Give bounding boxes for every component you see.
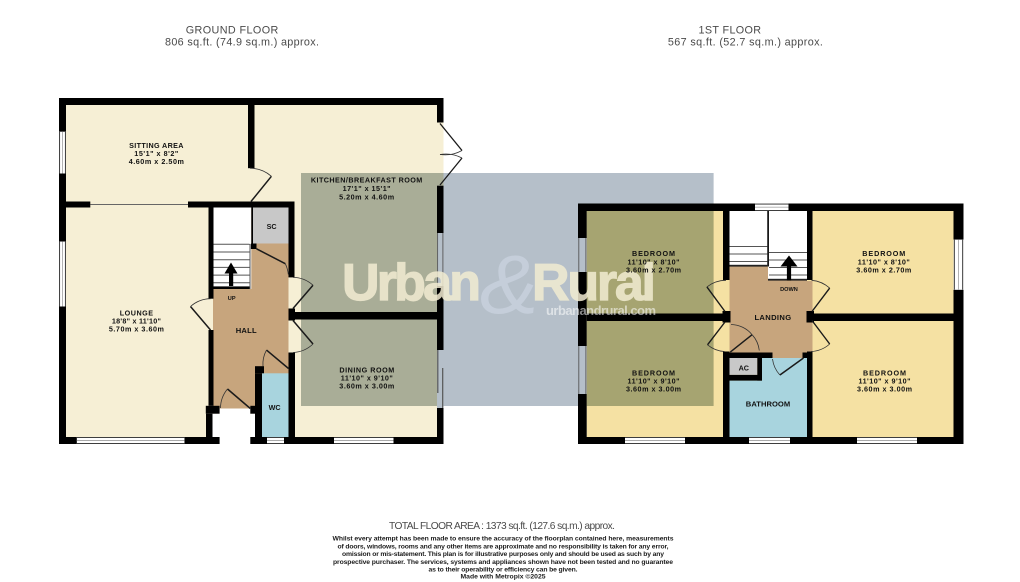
svg-text:as to their operability or eff: as to their operability or efficiency ca… [429,566,578,573]
svg-text:of doors, windows, rooms and a: of doors, windows, rooms and any other i… [338,543,669,550]
svg-text:urbanandrural.com: urbanandrural.com [546,303,656,318]
svg-text:3.60m x 2.70m: 3.60m x 2.70m [626,266,681,275]
svg-text:LANDING: LANDING [754,313,791,322]
svg-text:SC: SC [267,222,277,231]
svg-text:3.60m x 3.00m: 3.60m x 3.00m [626,385,681,394]
svg-text:Made with Metropix ©2025: Made with Metropix ©2025 [461,573,546,581]
svg-text:GROUND FLOOR: GROUND FLOOR [186,25,279,37]
svg-text:Urban: Urban [342,254,481,312]
svg-text:UP: UP [228,296,236,302]
svg-text:4.60m x 2.50m: 4.60m x 2.50m [129,157,184,166]
svg-text:AC: AC [739,364,749,373]
svg-text:5.20m x 4.60m: 5.20m x 4.60m [339,192,394,201]
svg-text:omission or mis-statement. Thi: omission or mis-statement. This plan is … [342,551,664,558]
svg-text:567 sq.ft. (52.7 sq.m.) approx: 567 sq.ft. (52.7 sq.m.) approx. [668,37,823,49]
svg-text:HALL: HALL [236,326,257,335]
svg-text:806 sq.ft. (74.9 sq.m.) approx: 806 sq.ft. (74.9 sq.m.) approx. [165,37,319,49]
svg-text:3.60m x 3.00m: 3.60m x 3.00m [339,382,394,391]
svg-text:DOWN: DOWN [780,287,798,293]
svg-text:BATHROOM: BATHROOM [746,400,790,409]
svg-text:&: & [480,238,539,332]
svg-text:Whilst every attempt has been: Whilst every attempt has been made to en… [333,536,674,543]
svg-text:TOTAL FLOOR AREA : 1373 sq.ft.: TOTAL FLOOR AREA : 1373 sq.ft. (127.6 sq… [389,521,615,532]
svg-text:WC: WC [269,403,281,412]
svg-text:prospective purchaser. The ser: prospective purchaser. The services, sys… [333,559,673,566]
svg-text:3.60m x 3.00m: 3.60m x 3.00m [857,385,912,394]
svg-text:3.60m x 2.70m: 3.60m x 2.70m [856,266,911,275]
svg-text:1ST FLOOR: 1ST FLOOR [699,25,762,37]
svg-text:5.70m x 3.60m: 5.70m x 3.60m [109,325,164,334]
